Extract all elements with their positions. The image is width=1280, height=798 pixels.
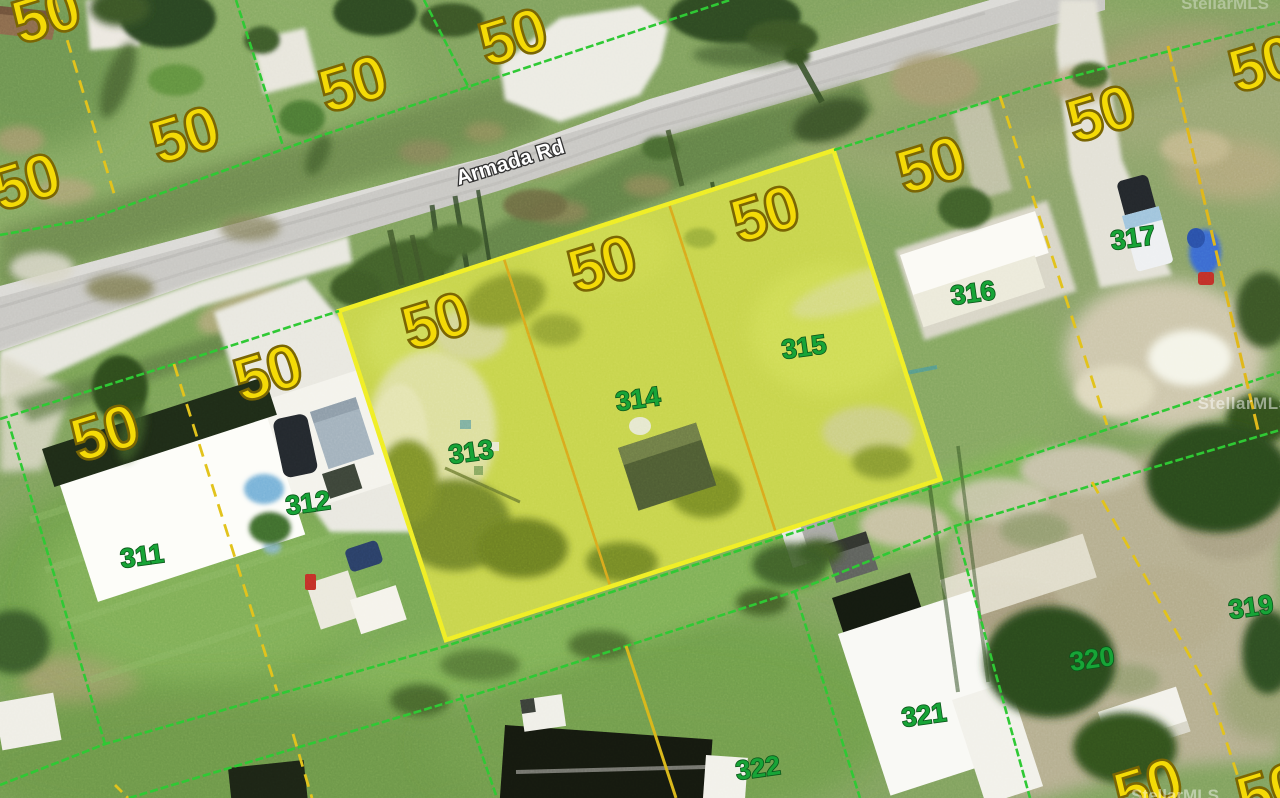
svg-text:StellarMLS: StellarMLS [1181, 0, 1269, 13]
svg-text:319: 319 [1227, 589, 1276, 625]
svg-text:StellarMLS: StellarMLS [1198, 394, 1280, 413]
svg-text:320: 320 [1068, 641, 1117, 677]
svg-text:321: 321 [900, 697, 949, 733]
svg-text:316: 316 [949, 275, 998, 311]
svg-text:313: 313 [447, 434, 496, 470]
svg-text:312: 312 [284, 485, 333, 521]
svg-text:315: 315 [780, 329, 829, 365]
svg-text:317: 317 [1109, 220, 1158, 256]
svg-text:StellarMLS: StellarMLS [1131, 786, 1219, 798]
svg-text:322: 322 [734, 750, 783, 786]
svg-text:311: 311 [118, 538, 165, 574]
svg-text:314: 314 [614, 381, 663, 417]
